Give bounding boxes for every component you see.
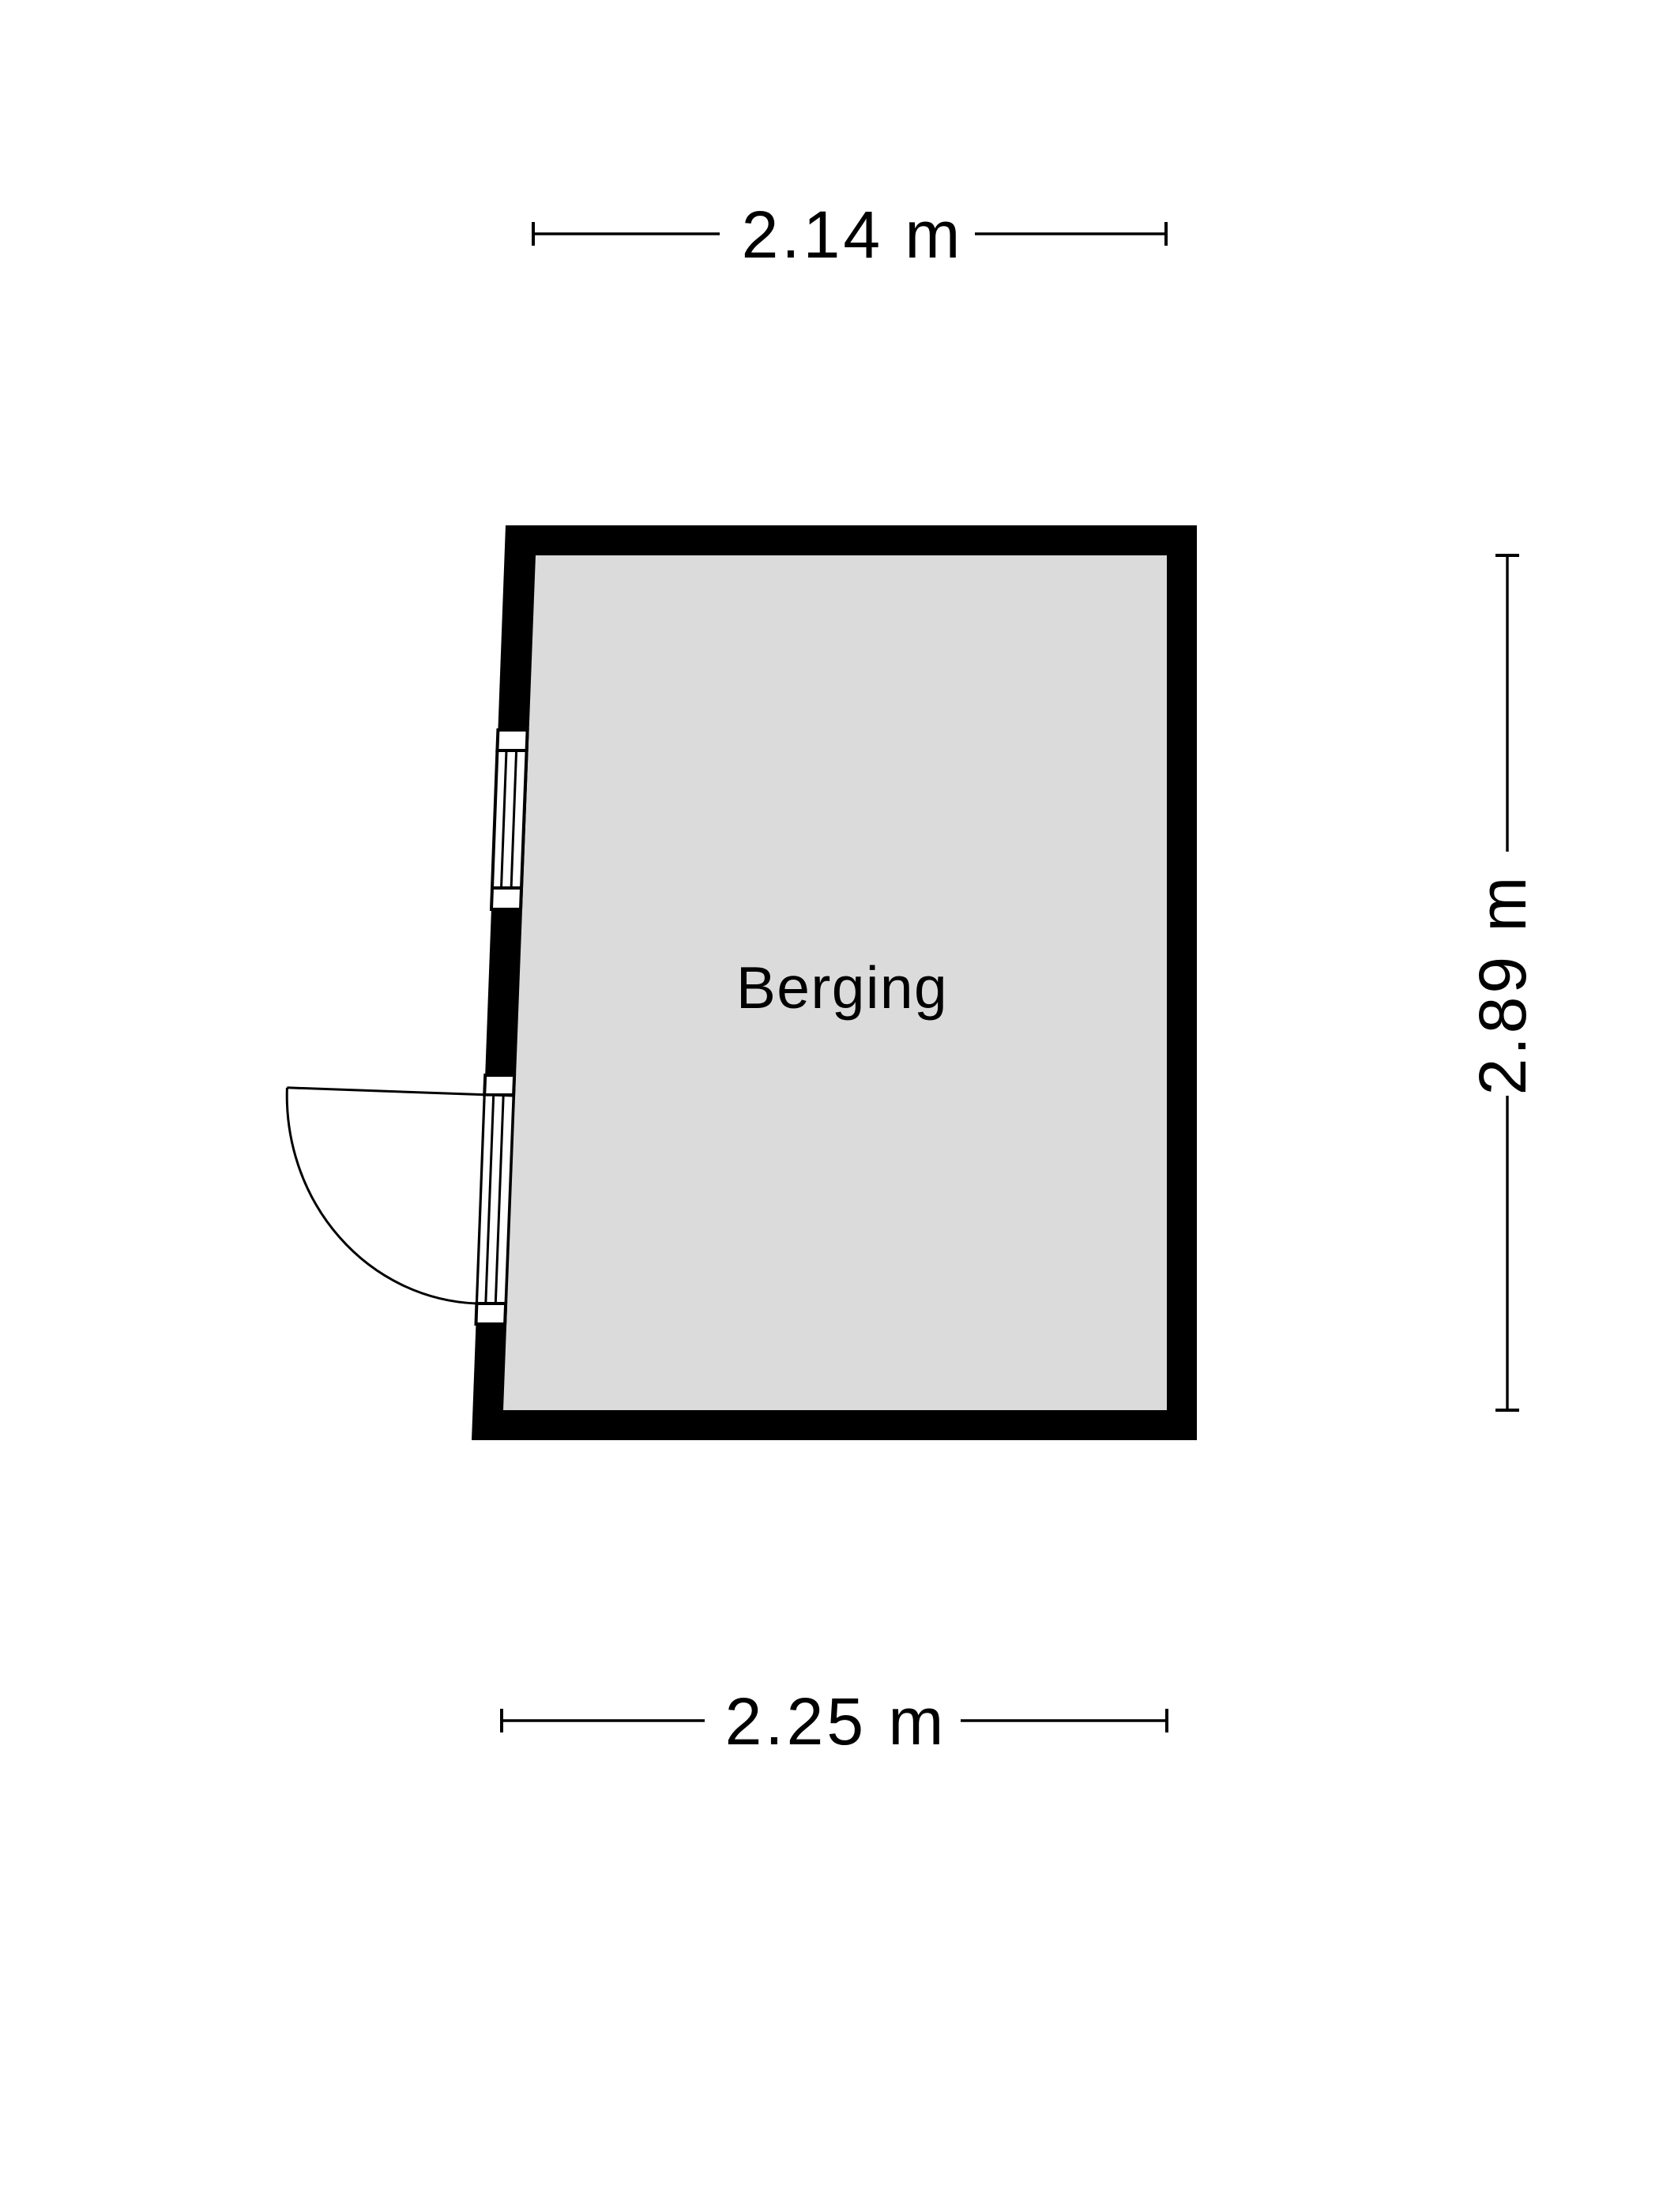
svg-text:2.89 m: 2.89 m <box>1465 874 1540 1096</box>
svg-text:2.25 m: 2.25 m <box>725 1684 947 1759</box>
svg-text:Berging: Berging <box>736 954 948 1021</box>
svg-text:2.14 m: 2.14 m <box>742 197 964 272</box>
